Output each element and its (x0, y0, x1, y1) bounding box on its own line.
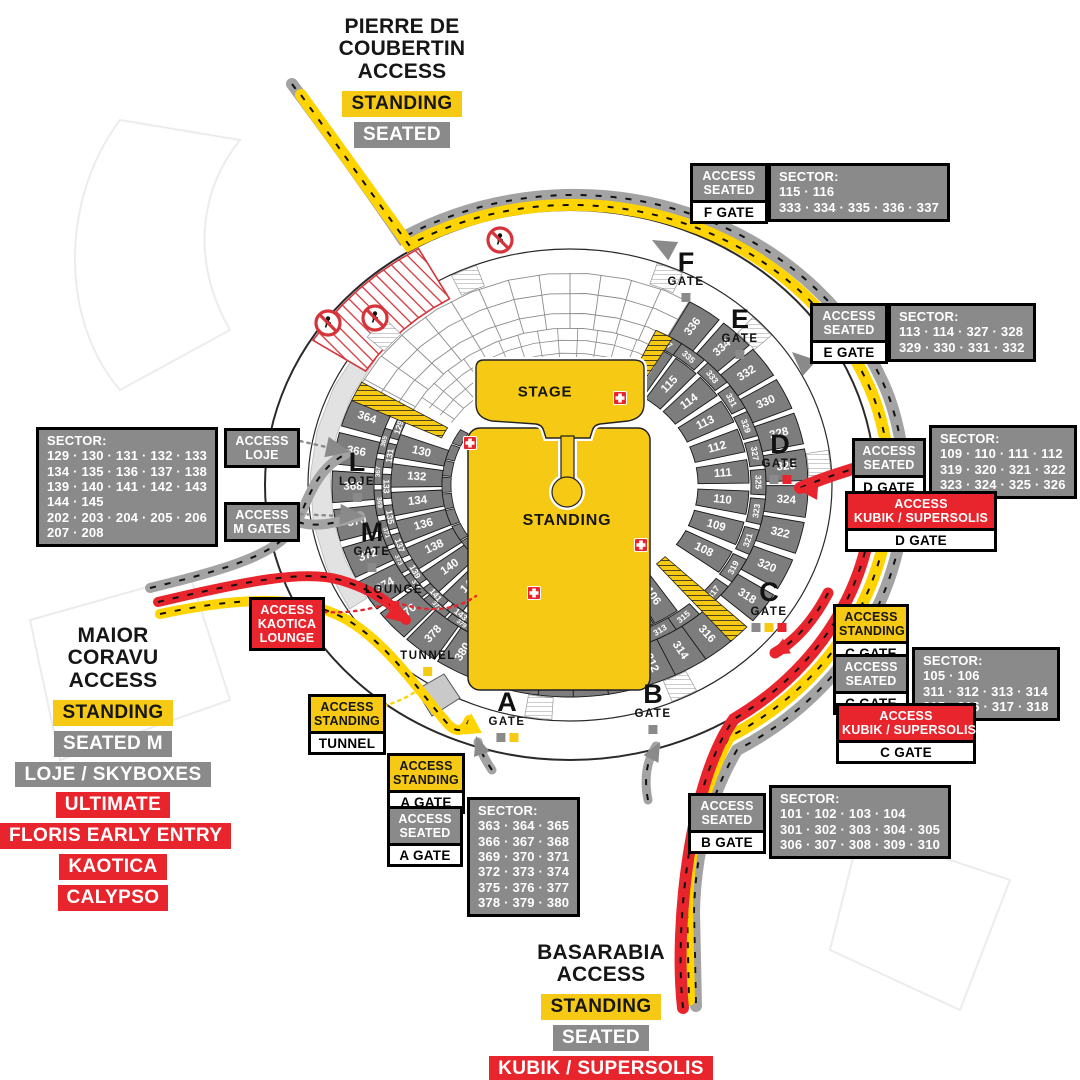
sector-list-a-seated: SECTOR:363 · 364 · 365366 · 367 · 368369… (467, 797, 580, 917)
sector-label-132: 132 (407, 470, 427, 483)
access-line: SEATED (858, 458, 920, 472)
access-line: ACCESS (393, 812, 457, 826)
info-box-loje: ACCESSLOJE (224, 428, 300, 468)
gate-squares (634, 721, 671, 739)
access-line: STANDING (393, 773, 459, 787)
sector-list-line: 101 · 102 · 103 · 104 (780, 806, 940, 821)
access-label-a-standing: ACCESSSTANDING (387, 753, 465, 793)
access-label-d-kubik: ACCESSKUBIK / SUPERSOLIS (845, 491, 997, 531)
pierre-title-line: PIERRE DE (287, 16, 517, 38)
gate-chip-e-seated: E GATE (810, 343, 888, 364)
access-line: ACCESS (230, 508, 294, 522)
gate-square-gray (682, 293, 691, 302)
gate-sub-label: GATE (750, 606, 789, 619)
gate-letter: L (339, 450, 375, 476)
sector-label-134: 134 (407, 494, 428, 508)
access-label-b-seated: ACCESSSEATED (688, 793, 766, 833)
gate-squares (353, 559, 390, 577)
gate-marker-m: MGATE (353, 520, 390, 577)
gate-sub-label: GATE (761, 458, 798, 471)
gate-chip-f-seated: F GATE (690, 203, 768, 224)
gate-squares (400, 663, 456, 681)
basarabia-badge-seated: SEATED (553, 1025, 649, 1051)
sector-list-line: 139 · 140 · 141 · 142 · 143 (47, 479, 207, 494)
gate-chip-d-kubik: D GATE (845, 531, 997, 552)
gate-sub-label: LOUNGE (365, 584, 423, 597)
info-box-f-seated: ACCESSSEATEDF GATE (690, 163, 768, 224)
no-pedestrians-icon (363, 306, 387, 330)
sector-list-line: SECTOR: (478, 803, 569, 818)
sector-label-133: 133 (381, 479, 391, 494)
pierre-access-block: PIERRE DECOUBERTINACCESSSTANDINGSEATED (287, 16, 517, 150)
access-line: ACCESS (314, 700, 380, 714)
sector-list-line: 202 · 203 · 204 · 205 · 206 (47, 510, 207, 525)
access-line: SEATED (393, 826, 457, 840)
sector-list-line: SECTOR: (940, 431, 1066, 446)
maior-badge-seated-m: SEATED M (54, 731, 172, 757)
access-line: ACCESS (393, 759, 459, 773)
info-box-d-kubik: ACCESSKUBIK / SUPERSOLISD GATE (845, 491, 997, 552)
gate-squares (488, 729, 525, 747)
gate-letter: F (667, 250, 704, 276)
gate-square-yellow (765, 623, 774, 632)
gate-marker-lounge: LOUNGE (365, 584, 423, 615)
gate-marker-c: CGATE (750, 580, 789, 637)
gate-sub-label: GATE (488, 716, 525, 729)
pierre-badge-standing: STANDING (342, 91, 461, 117)
access-label-c-standing: ACCESSSTANDING (833, 604, 909, 644)
gate-marker-e: EGATE (721, 307, 758, 364)
basarabia-badge-standing: STANDING (541, 994, 660, 1020)
sector-list-line: 129 · 130 · 131 · 132 · 133 (47, 448, 207, 463)
gate-squares (721, 346, 758, 364)
access-line: KUBIK / SUPERSOLIS (851, 511, 991, 525)
access-label-f-seated: ACCESSSEATED (690, 163, 768, 203)
access-line: ACCESS (851, 497, 991, 511)
sector-list-line: 109 · 110 · 111 · 112 (940, 446, 1066, 461)
stage-label: STAGE (518, 384, 573, 401)
gate-marker-f: FGATE (667, 250, 704, 307)
gate-letter: E (721, 307, 758, 333)
maior-badges: STANDINGSEATED MLOJE / SKYBOXESULTIMATEF… (0, 697, 226, 913)
access-line: SEATED (694, 813, 760, 827)
access-line: ACCESS (696, 169, 762, 183)
maior-badge-ultimate: ULTIMATE (56, 792, 170, 818)
no-pedestrians-icon (316, 311, 340, 335)
maior-badge-floris-early-entry: FLORIS EARLY ENTRY (0, 823, 231, 849)
sector-list-line: 323 · 324 · 325 · 326 (940, 477, 1066, 492)
gate-square-gray (649, 725, 658, 734)
sector-list-d-seated: SECTOR:109 · 110 · 111 · 112319 · 320 · … (929, 425, 1077, 499)
gate-squares (750, 619, 789, 637)
info-box-a-seated: ACCESSSEATEDA GATE (387, 806, 463, 867)
basarabia-title-line: BASARABIA (481, 942, 721, 964)
gate-squares (761, 471, 798, 489)
gate-sub-label: GATE (353, 546, 390, 559)
sector-list-line: 363 · 364 · 365 (478, 818, 569, 833)
sector-list-line: 301 · 302 · 303 · 304 · 305 (780, 822, 940, 837)
access-line: ACCESS (839, 660, 903, 674)
pierre-title-line: ACCESS (287, 61, 517, 83)
gate-square-gray (352, 493, 361, 502)
sector-list-line: 366 · 367 · 368 (478, 834, 569, 849)
sector-label-111: 111 (714, 467, 733, 480)
gate-chip-a-seated: A GATE (387, 846, 463, 867)
sector-list-line: SECTOR: (47, 433, 207, 448)
access-line: STANDING (839, 624, 903, 638)
sector-list-line: 375 · 376 · 377 (478, 880, 569, 895)
gate-sub-label: GATE (667, 276, 704, 289)
sector-list-west-sectors: SECTOR:129 · 130 · 131 · 132 · 133134 · … (36, 427, 218, 547)
maior-access-block: MAIORCORAVUACCESSSTANDINGSEATED MLOJE / … (0, 625, 226, 913)
gate-sub-label: LOJE (339, 476, 375, 489)
access-line: LOJE (230, 448, 294, 462)
gate-chip-c-kubik: C GATE (836, 743, 976, 764)
info-box-m-gates: ACCESSM GATES (224, 502, 300, 542)
gate-squares (365, 597, 423, 615)
sector-list-line: SECTOR: (780, 791, 940, 806)
gate-square-gray (736, 350, 745, 359)
access-label-m-gates: ACCESSM GATES (224, 502, 300, 542)
gate-square-yellow (509, 733, 518, 742)
sector-list-line: 105 · 106 (923, 668, 1049, 683)
info-box-tunnel: ACCESSSTANDINGTUNNEL (308, 694, 386, 755)
info-box-b-seated: ACCESSSEATEDB GATE (688, 793, 766, 854)
sector-list-line: 372 · 373 · 374 (478, 864, 569, 879)
info-box-kaotica-lounge: ACCESSKAOTICALOUNGE (249, 597, 325, 651)
sector-list-line: 333 · 334 · 335 · 336 · 337 (779, 200, 939, 215)
pierre-title-line: COUBERTIN (287, 38, 517, 60)
sector-list-line: 306 · 307 · 308 · 309 · 310 (780, 837, 940, 852)
sector-list-b-seated: SECTOR:101 · 102 · 103 · 104301 · 302 · … (769, 785, 951, 859)
gate-square-red (782, 475, 791, 484)
gate-letter: A (488, 690, 525, 716)
gate-square-gray (368, 563, 377, 572)
b-stage-circle (552, 477, 582, 507)
sector-list-line: 144 · 145 (47, 494, 207, 509)
info-box-e-seated: ACCESSSEATEDE GATE (810, 303, 888, 364)
gate-squares (667, 289, 704, 307)
access-line: ACCESS (694, 799, 760, 813)
maior-title-line: CORAVU (0, 647, 226, 669)
gate-square-yellow (423, 667, 432, 676)
access-line: SEATED (839, 674, 903, 688)
info-box-c-kubik: ACCESSKUBIK / SUPERSOLISC GATE (836, 703, 976, 764)
sector-label-110: 110 (713, 493, 733, 507)
access-label-c-seated: ACCESSSEATED (833, 654, 909, 694)
gate-marker-a: AGATE (488, 690, 525, 747)
medical-cross-icon (464, 437, 477, 450)
gate-sub-label: TUNNEL (400, 650, 456, 663)
access-line: LOUNGE (255, 631, 319, 645)
sector-list-line: SECTOR: (779, 169, 939, 184)
sector-list-e-seated: SECTOR:113 · 114 · 327 · 328329 · 330 · … (888, 303, 1036, 362)
gate-marker-d: DGATE (761, 432, 798, 489)
sector-label-369: 369 (375, 497, 383, 509)
maior-badge-standing: STANDING (53, 700, 172, 726)
access-label-c-kubik: ACCESSKUBIK / SUPERSOLIS (836, 703, 976, 743)
access-line: KUBIK / SUPERSOLIS (842, 723, 970, 737)
maior-title-line: ACCESS (0, 670, 226, 692)
basarabia-badges: STANDINGSEATEDKUBIK / SUPERSOLIS (481, 992, 721, 1080)
gate-square-gray (496, 733, 505, 742)
sector-label-367: 367 (375, 466, 383, 478)
gate-squares (339, 489, 375, 507)
medical-cross-icon (528, 587, 541, 600)
standing-label: STANDING (523, 512, 612, 530)
access-label-loje: ACCESSLOJE (224, 428, 300, 468)
basarabia-badge-kubik-supersolis: KUBIK / SUPERSOLIS (489, 1056, 713, 1080)
access-line: ACCESS (842, 709, 970, 723)
stairs-gate (525, 695, 554, 720)
sector-list-line: 113 · 114 · 327 · 328 (899, 324, 1025, 339)
gate-chip-tunnel: TUNNEL (308, 734, 386, 755)
gate-square-gray (769, 475, 778, 484)
medical-cross-icon (614, 392, 627, 405)
gate-marker-tunnel: TUNNEL (400, 650, 456, 681)
basarabia-access-block: BASARABIAACCESSSTANDINGSEATEDKUBIK / SUP… (481, 942, 721, 1080)
access-line: ACCESS (816, 309, 882, 323)
access-line: SEATED (696, 183, 762, 197)
info-box-d-seated: ACCESSSEATEDD GATE (852, 438, 926, 499)
gate-sub-label: GATE (634, 708, 671, 721)
sector-list-line: 369 · 370 · 371 (478, 849, 569, 864)
access-label-tunnel: ACCESSSTANDING (308, 694, 386, 734)
access-line: M GATES (230, 522, 294, 536)
sector-label-324: 324 (776, 493, 797, 506)
sector-list-line: SECTOR: (923, 653, 1049, 668)
stadium-access-map: 3363343323303283263243223203183163143123… (0, 0, 1080, 1080)
gate-marker-b: BGATE (634, 682, 671, 739)
basarabia-title-line: ACCESS (481, 964, 721, 986)
gate-marker-l: LLOJE (339, 450, 375, 507)
sector-list-line: 319 · 320 · 321 · 322 (940, 462, 1066, 477)
sector-list-line: 115 · 116 (779, 184, 939, 199)
gate-square-gray (752, 623, 761, 632)
gate-chip-b-seated: B GATE (688, 833, 766, 854)
info-box-a-standing: ACCESSSTANDINGA GATE (387, 753, 465, 814)
access-label-kaotica-lounge: ACCESSKAOTICALOUNGE (249, 597, 325, 651)
sector-list-line: 207 · 208 (47, 525, 207, 540)
gate-sub-label: GATE (721, 333, 758, 346)
sector-list-line: 378 · 379 · 380 (478, 895, 569, 910)
gate-square-red (778, 623, 787, 632)
access-line: STANDING (314, 714, 380, 728)
gate-letter: D (761, 432, 798, 458)
medical-cross-icon (635, 539, 648, 552)
access-line: SEATED (816, 323, 882, 337)
access-label-a-seated: ACCESSSEATED (387, 806, 463, 846)
access-line: KAOTICA (255, 617, 319, 631)
pierre-badge-seated: SEATED (354, 122, 450, 148)
sector-list-line: 329 · 330 · 331 · 332 (899, 340, 1025, 355)
gate-letter: M (353, 520, 390, 546)
gate-letter: C (750, 580, 789, 606)
sector-list-line: SECTOR: (899, 309, 1025, 324)
sector-label-323: 323 (750, 503, 762, 519)
access-line: ACCESS (858, 444, 920, 458)
access-label-e-seated: ACCESSSEATED (810, 303, 888, 343)
access-label-d-seated: ACCESSSEATED (852, 438, 926, 478)
access-line: ACCESS (255, 603, 319, 617)
sector-list-line: 311 · 312 · 313 · 314 (923, 684, 1049, 699)
maior-badge-loje-skyboxes: LOJE / SKYBOXES (15, 762, 210, 788)
gate-letter: B (634, 682, 671, 708)
maior-badge-kaotica: KAOTICA (59, 854, 166, 880)
access-line: ACCESS (230, 434, 294, 448)
maior-title-line: MAIOR (0, 625, 226, 647)
maior-badge-calypso: CALYPSO (58, 885, 169, 911)
sector-list-f-seated: SECTOR:115 · 116333 · 334 · 335 · 336 · … (768, 163, 950, 222)
access-line: ACCESS (839, 610, 903, 624)
stage-runway (561, 436, 574, 480)
gate-square-red (389, 601, 398, 610)
pierre-badges: STANDINGSEATED (287, 88, 517, 150)
sector-list-line: 134 · 135 · 136 · 137 · 138 (47, 464, 207, 479)
no-pedestrians-icon (488, 228, 512, 252)
